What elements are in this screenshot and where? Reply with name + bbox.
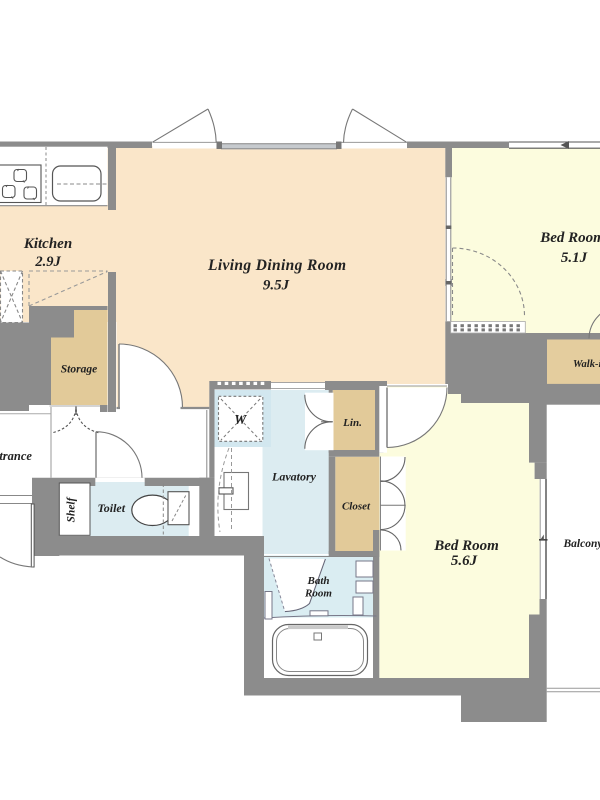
svg-text:Bed Room: Bed Room <box>433 538 499 554</box>
svg-text:Kitchen: Kitchen <box>23 236 72 252</box>
svg-text:Balcony: Balcony <box>563 538 600 550</box>
svg-text:Toilet: Toilet <box>98 501 126 515</box>
svg-text:Closet: Closet <box>342 501 371 513</box>
svg-text:Bath: Bath <box>306 575 329 587</box>
svg-text:Lavatory: Lavatory <box>271 470 317 484</box>
svg-text:5.1J: 5.1J <box>561 250 588 266</box>
svg-text:9.5J: 9.5J <box>263 278 290 294</box>
svg-text:Living Dining Room: Living Dining Room <box>207 257 346 274</box>
svg-text:Lin.: Lin. <box>342 417 362 429</box>
svg-text:5.6J: 5.6J <box>451 553 478 569</box>
svg-text:Room: Room <box>304 588 332 600</box>
svg-text:Entrance: Entrance <box>0 449 32 463</box>
svg-text:2.9J: 2.9J <box>34 254 61 270</box>
svg-text:Bed Room: Bed Room <box>539 230 600 246</box>
svg-text:Walk-in Closet: Walk-in Closet <box>573 359 600 370</box>
svg-text:Shelf: Shelf <box>65 496 77 522</box>
svg-text:W: W <box>234 412 247 427</box>
svg-text:Storage: Storage <box>61 364 97 376</box>
